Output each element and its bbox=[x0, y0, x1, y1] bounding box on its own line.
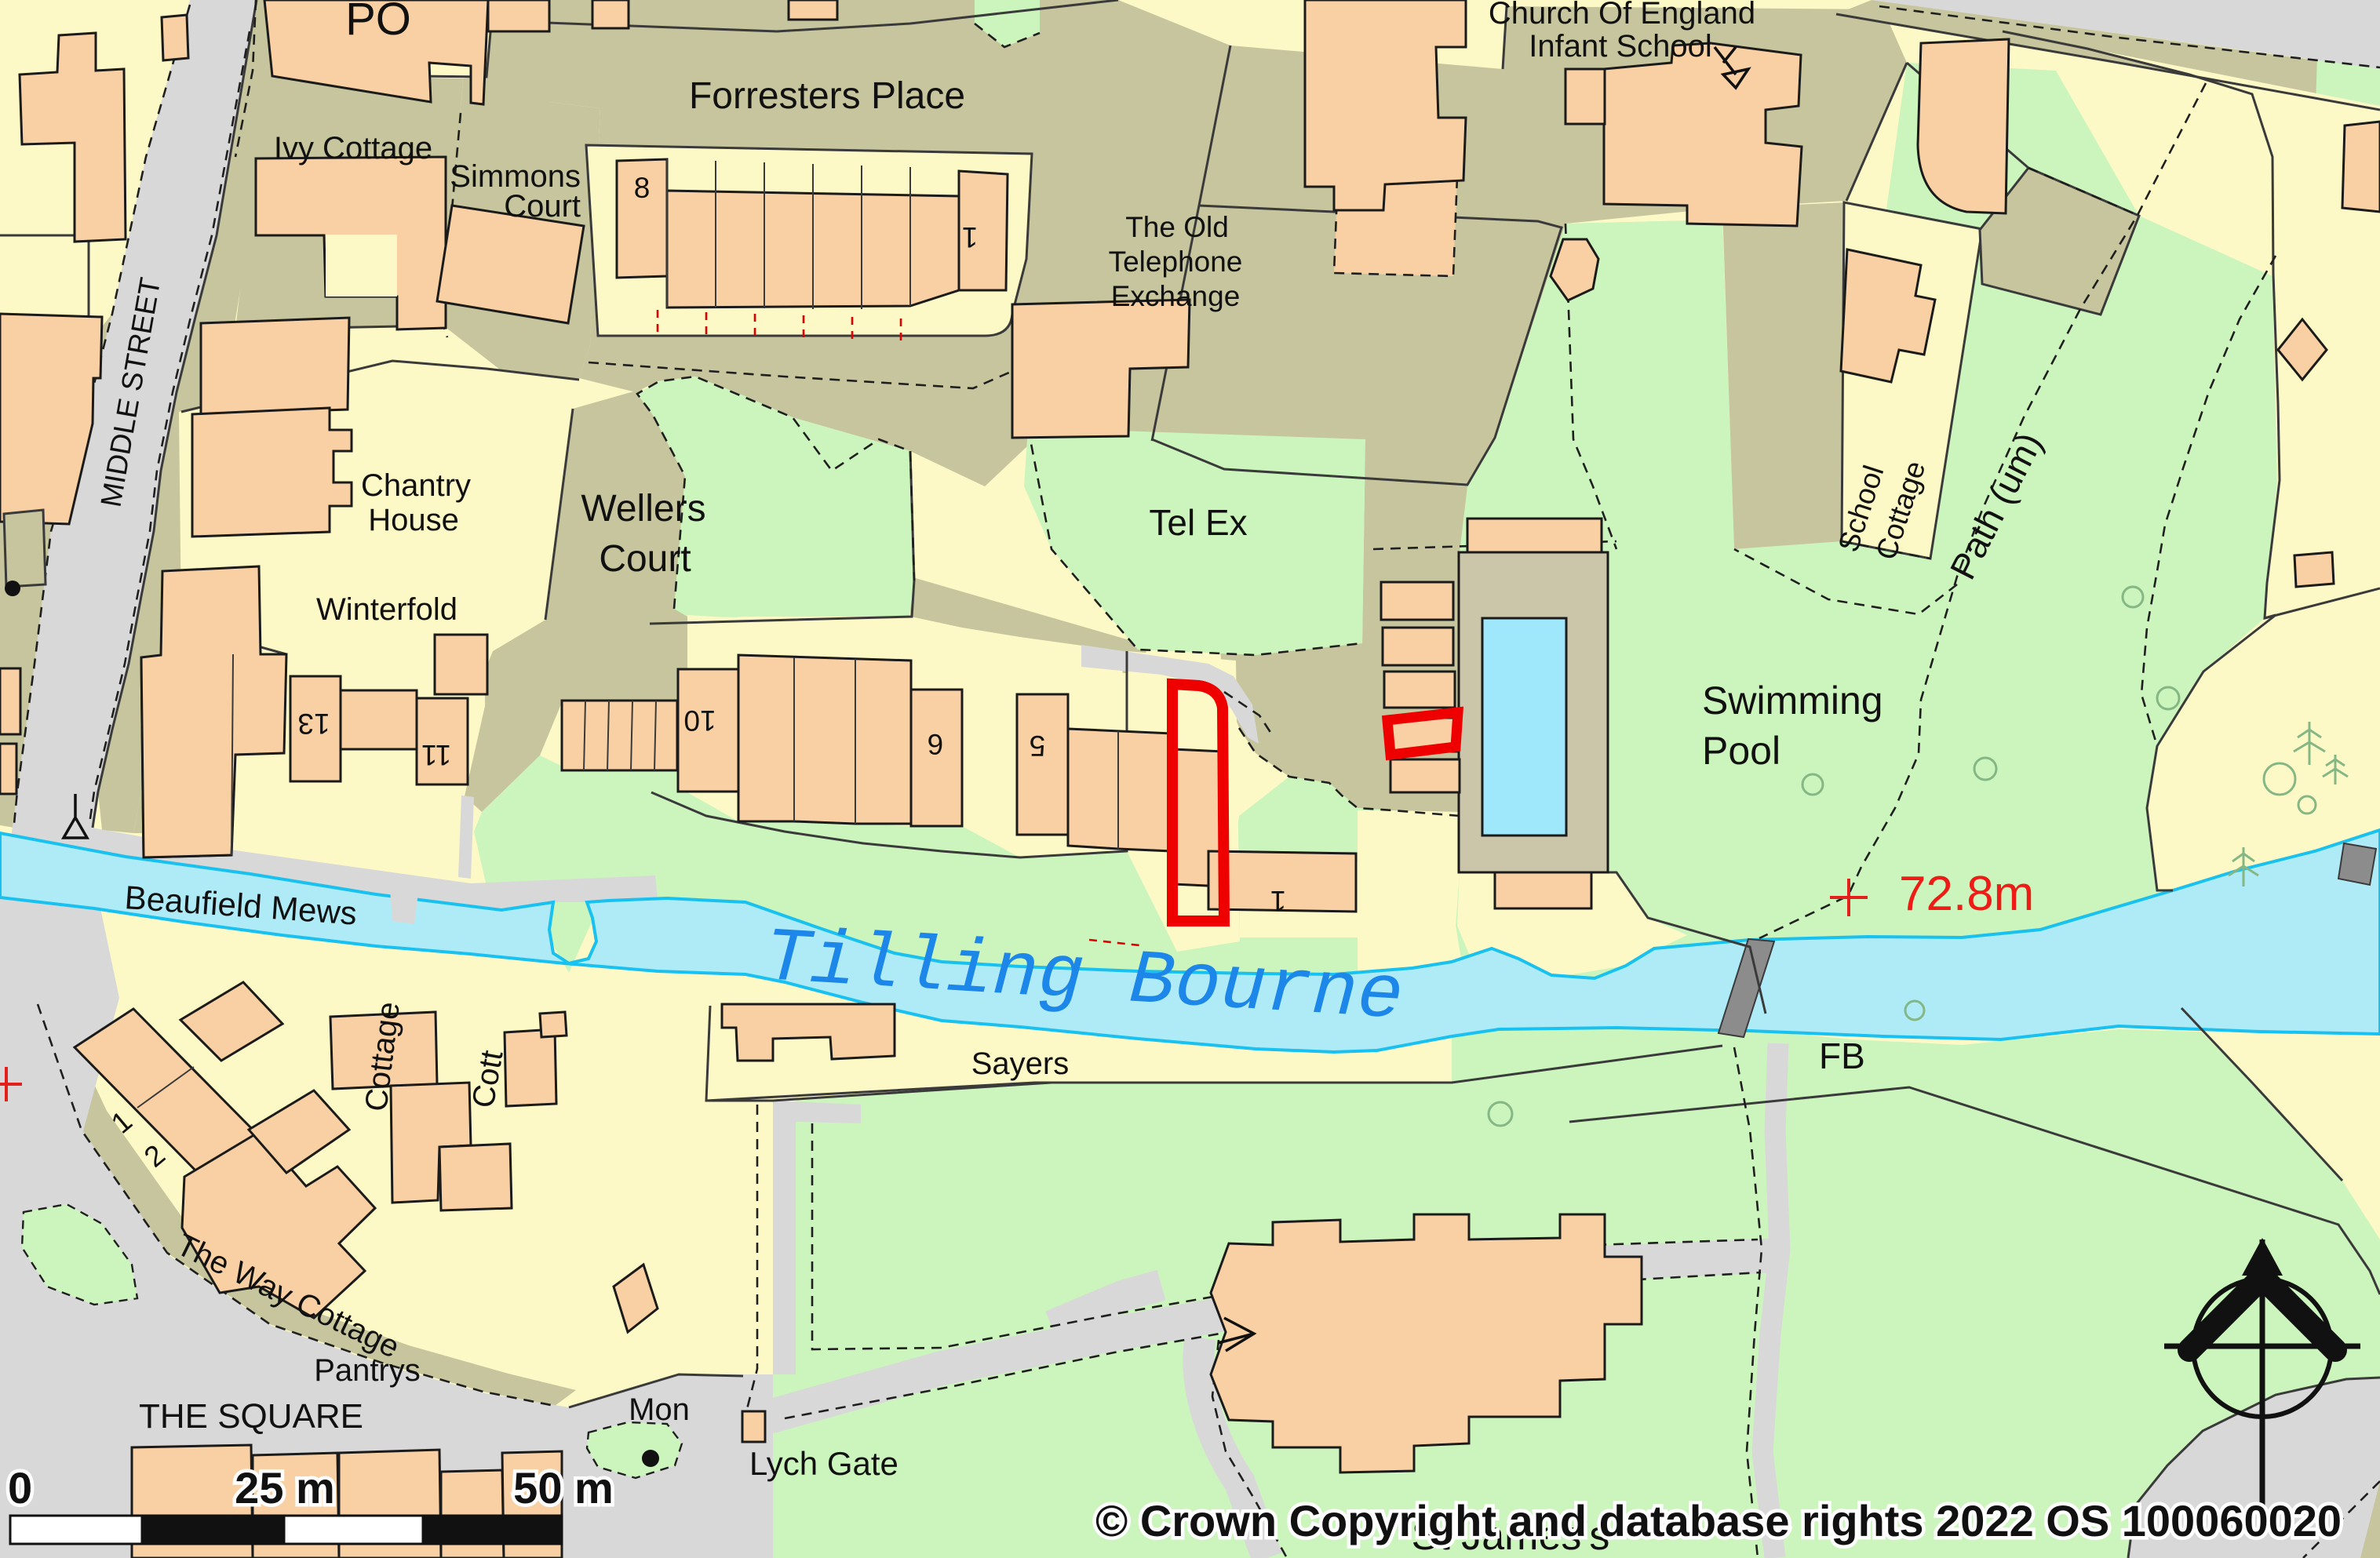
svg-text:Wellers: Wellers bbox=[581, 488, 705, 530]
svg-text:13: 13 bbox=[297, 708, 330, 740]
svg-text:Church Of England: Church Of England bbox=[1489, 0, 1755, 31]
svg-text:25 m: 25 m bbox=[235, 1463, 335, 1512]
svg-text:Telephone: Telephone bbox=[1109, 246, 1243, 278]
svg-text:Court: Court bbox=[599, 538, 691, 580]
svg-text:10: 10 bbox=[683, 704, 716, 737]
svg-text:Sayers: Sayers bbox=[971, 1047, 1070, 1081]
svg-text:Winterfold: Winterfold bbox=[316, 592, 457, 627]
svg-text:50 m: 50 m bbox=[513, 1463, 614, 1512]
svg-text:Lych Gate: Lych Gate bbox=[749, 1445, 898, 1482]
svg-text:Tel Ex: Tel Ex bbox=[1149, 502, 1247, 543]
svg-text:Swimming: Swimming bbox=[1702, 679, 1883, 723]
svg-text:Ivy Cottage: Ivy Cottage bbox=[274, 131, 432, 166]
svg-text:THE SQUARE: THE SQUARE bbox=[139, 1397, 363, 1436]
svg-text:6: 6 bbox=[928, 728, 944, 760]
svg-text:5: 5 bbox=[1030, 730, 1046, 762]
svg-text:Chantry: Chantry bbox=[361, 468, 471, 503]
svg-text:Court: Court bbox=[504, 189, 581, 224]
svg-text:Forresters Place: Forresters Place bbox=[689, 75, 965, 117]
svg-text:Exchange: Exchange bbox=[1111, 280, 1241, 312]
svg-text:72.8m: 72.8m bbox=[1899, 867, 2034, 921]
svg-text:© Crown Copyright and database: © Crown Copyright and database rights 20… bbox=[1095, 1496, 2342, 1545]
svg-text:0: 0 bbox=[8, 1463, 32, 1512]
svg-text:1: 1 bbox=[1270, 885, 1287, 917]
svg-text:8: 8 bbox=[634, 172, 651, 204]
svg-text:Infant School: Infant School bbox=[1529, 29, 1712, 64]
svg-text:Mon: Mon bbox=[629, 1392, 690, 1427]
svg-text:Pool: Pool bbox=[1702, 729, 1780, 773]
svg-text:1: 1 bbox=[962, 221, 979, 253]
svg-text:The Old: The Old bbox=[1125, 211, 1229, 243]
svg-text:Pantrys: Pantrys bbox=[314, 1353, 421, 1388]
svg-text:PO: PO bbox=[345, 0, 411, 45]
svg-text:11: 11 bbox=[421, 739, 451, 771]
svg-text:House: House bbox=[368, 503, 459, 537]
svg-text:FB: FB bbox=[1819, 1036, 1865, 1076]
